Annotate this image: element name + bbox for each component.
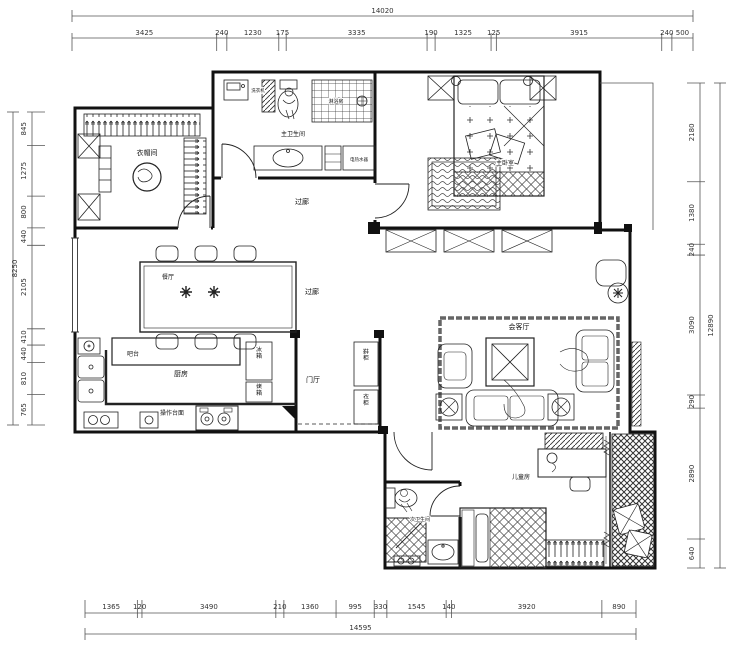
dining-room: [140, 246, 296, 349]
chair-icon: [234, 246, 256, 261]
plant-icon: [613, 288, 623, 298]
label-corridor-top: 过廊: [295, 197, 309, 206]
stove-icon: [196, 406, 238, 430]
dim-value: 3425: [135, 29, 153, 37]
dim-value: 1380: [688, 204, 696, 222]
shelf-icon: [545, 433, 603, 449]
label-counter: 操作台面: [160, 409, 184, 417]
label-kids: 儿童房: [512, 473, 530, 481]
pillow-icon: [476, 514, 488, 562]
sink-icon: [78, 356, 104, 378]
chair-icon: [156, 246, 178, 261]
dim-total: 12890: [707, 314, 715, 336]
label-master-bath: 主卫生间: [281, 130, 305, 138]
dim-value: 140: [442, 603, 455, 611]
label-cloakroom: 衣帽间: [137, 148, 158, 157]
label-closet: 衣柜: [363, 393, 369, 407]
lamp-icon: [452, 77, 461, 86]
dim-value: 190: [424, 29, 437, 37]
dim-value: 1275: [20, 162, 28, 180]
counter-edge: [106, 350, 296, 404]
dim-value: 3335: [348, 29, 366, 37]
armchair-icon: [596, 260, 626, 286]
rug-icon: [428, 158, 500, 210]
structural-columns: [290, 222, 632, 434]
dim-value: 765: [20, 403, 28, 416]
dimension-chain-top: 3425240123017533351901325125391524050014…: [72, 7, 693, 51]
dim-value: 2180: [688, 123, 696, 141]
chair-icon: [570, 477, 590, 491]
dim-value: 845: [20, 122, 28, 135]
label-shoe-cabinet: 鞋柜: [363, 348, 369, 362]
dim-value: 3490: [200, 603, 218, 611]
chair-icon: [195, 334, 217, 349]
radiator-icon: [632, 342, 641, 426]
hanger-rack-icon: [184, 138, 206, 214]
desk-icon: [538, 449, 606, 477]
door-kids-area: [394, 432, 432, 470]
sink-icon: [78, 380, 104, 402]
pillow-icon: [500, 80, 540, 104]
floor-plan: 3425240123017533351901325125391524050014…: [0, 0, 740, 646]
dim-value: 290: [688, 395, 696, 408]
dimension-chain-right: 218013802403090290289064012890: [687, 83, 726, 568]
dim-value: 3090: [688, 316, 696, 334]
label-oven: 烤箱: [256, 383, 262, 397]
label-corridor-mid: 过廊: [305, 287, 319, 296]
hanger-rack-icon: [84, 114, 200, 136]
label-hall: 门厅: [306, 375, 320, 384]
carpet-border: [440, 318, 618, 428]
dim-value: 1230: [244, 29, 262, 37]
dim-value: 810: [20, 372, 28, 385]
bedroom-balcony-edge: [600, 83, 653, 230]
toilet-icon: [280, 80, 297, 89]
master-bathroom: [224, 80, 375, 170]
armchair-icon: [438, 344, 472, 388]
living-room: [436, 260, 641, 428]
dim-value: 120: [133, 603, 146, 611]
door-master-bath: [222, 144, 256, 178]
chair-icon: [156, 334, 178, 349]
dining-table-icon: [140, 262, 296, 332]
label-master-bedroom: 主卧室: [496, 159, 514, 167]
plant-pot-icon: [436, 394, 574, 420]
dim-value: 440: [20, 230, 28, 243]
plant-icon: [180, 286, 220, 298]
master-bedroom: [386, 76, 556, 252]
door-second-bath: [430, 486, 460, 516]
doors: [178, 144, 460, 516]
dim-value: 330: [374, 603, 387, 611]
label-second-bath: 次卫生间: [410, 516, 430, 523]
label-kitchen: 厨房: [174, 369, 188, 378]
label-fridge: 冰箱: [256, 346, 262, 360]
cloakroom: [78, 114, 206, 220]
label-washing-machine: 洗衣机: [251, 87, 265, 94]
lamp-icon: [524, 77, 533, 86]
second-bathroom: [386, 488, 458, 566]
pillow-icon: [458, 80, 498, 104]
floor-plan-canvas: 3425240123017533351901325125391524050014…: [0, 0, 740, 646]
desk-lamp-icon: [547, 453, 557, 463]
door-openings: [71, 174, 464, 517]
dim-value: 800: [20, 205, 28, 218]
dim-value: 890: [612, 603, 625, 611]
dimension-chain-bottom: 1365120349021013609953301545140392089014…: [85, 600, 636, 640]
dim-value: 1360: [301, 603, 319, 611]
chair-icon: [234, 334, 256, 349]
kids-room: [460, 433, 654, 568]
dim-value: 995: [348, 603, 361, 611]
dim-value: 210: [273, 603, 286, 611]
label-dining: 餐厅: [162, 273, 174, 281]
dim-total: 8250: [11, 260, 19, 278]
toilet-icon: [386, 488, 395, 508]
dimension-chain-left: 845127580044021054104408107658250: [7, 112, 45, 425]
dim-value: 2890: [688, 465, 696, 483]
dim-value: 2105: [20, 278, 28, 296]
dim-total: 14020: [371, 7, 393, 15]
dim-value: 240: [215, 29, 228, 37]
dim-value: 1325: [454, 29, 472, 37]
dim-value: 640: [688, 547, 696, 560]
dim-value: 500: [676, 29, 689, 37]
dim-value: 125: [487, 29, 500, 37]
dim-value: 410: [20, 330, 28, 343]
wardrobe-icon: [546, 540, 604, 566]
dim-value: 3920: [518, 603, 536, 611]
dim-value: 175: [276, 29, 289, 37]
dim-value: 1365: [102, 603, 120, 611]
label-water-heater: 电热水器: [350, 156, 368, 163]
dim-value: 1545: [408, 603, 426, 611]
dim-value: 440: [20, 347, 28, 360]
label-shower-room: 淋浴房: [328, 98, 343, 105]
dim-value: 240: [660, 29, 673, 37]
stool-icon: [133, 163, 161, 191]
dim-value: 3915: [570, 29, 588, 37]
chair-icon: [195, 246, 217, 261]
dim-value: 240: [688, 243, 696, 256]
door-master-bedroom: [375, 184, 409, 218]
dim-total: 14595: [349, 624, 371, 632]
label-living: 会客厅: [509, 322, 530, 331]
label-bar: 吧台: [127, 350, 139, 358]
kitchen: [78, 338, 296, 430]
